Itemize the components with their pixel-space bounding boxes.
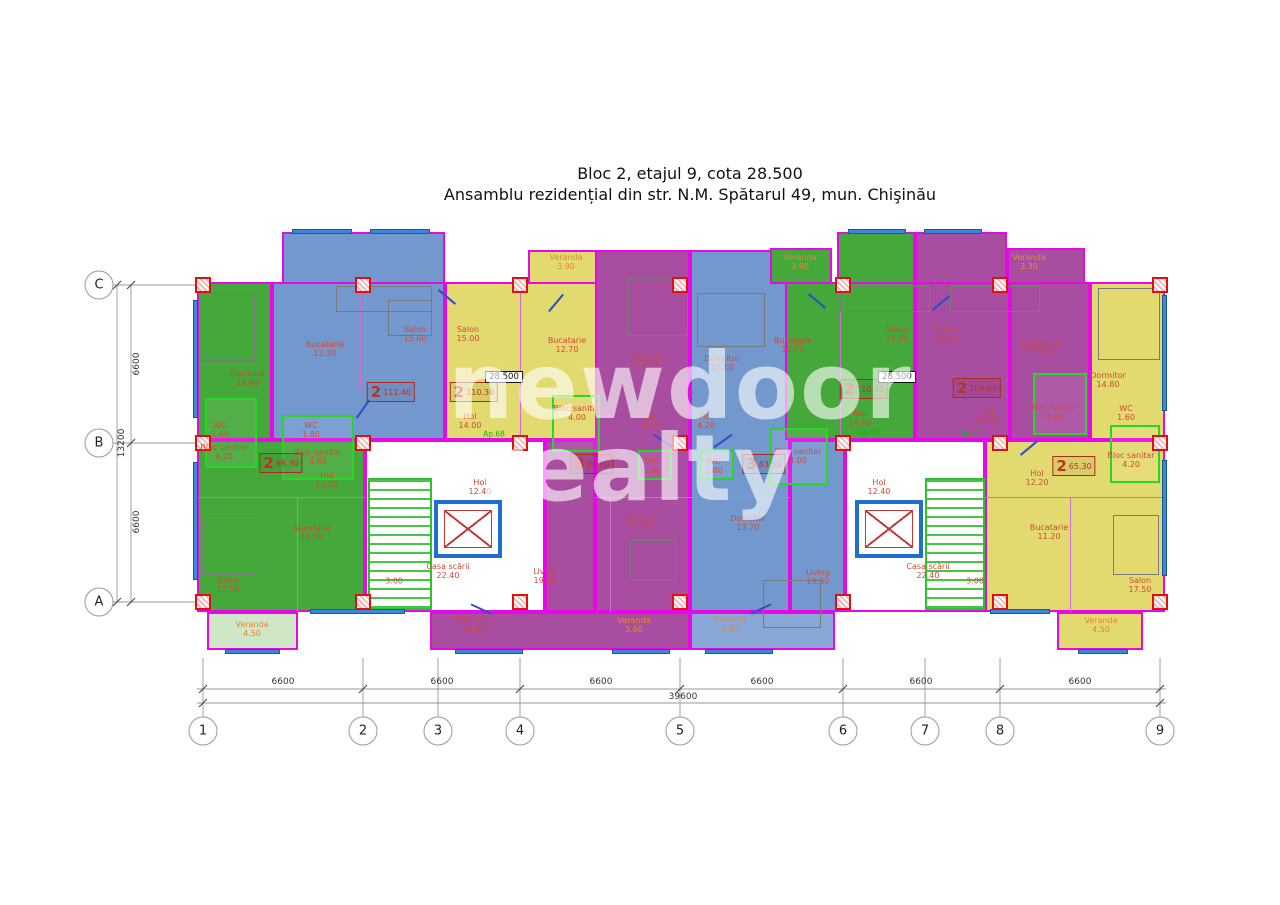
room-area: 3.60 <box>617 625 650 634</box>
room-area: 12.40 <box>868 487 891 496</box>
room-label: Dormitor13.70 <box>622 514 658 532</box>
room-name: Hol <box>459 412 482 421</box>
room-label: Veranda3.30 <box>1012 253 1045 271</box>
room-name: Hol <box>469 478 492 487</box>
room-name: Dormitor <box>630 354 666 363</box>
room-area: 3.60 <box>713 624 746 633</box>
room-label: Salon15.00 <box>457 325 480 343</box>
room-name: Salon <box>217 576 240 585</box>
column-marker <box>355 435 371 451</box>
room-area: 4.20 <box>697 421 715 430</box>
elevator-shaft-cross <box>865 510 913 548</box>
room-label: Dormitor14.80 <box>230 369 266 387</box>
room-name: Dormitor <box>730 514 766 523</box>
staircase-left <box>368 478 432 610</box>
room-label: Bloc sanitar4.20 <box>1107 451 1154 469</box>
room-name: Bucatarie <box>774 336 812 345</box>
axis-bubble-B: B <box>85 429 114 458</box>
room-label: Hol14.00 <box>849 409 872 427</box>
elevator-right <box>855 500 923 558</box>
room-name: Dormitor <box>704 354 740 363</box>
window <box>848 229 906 234</box>
interior-wall <box>1070 497 1071 612</box>
room-label: Bucatarie12.70 <box>1021 340 1059 358</box>
room-label: WC1.80 <box>643 457 661 475</box>
window <box>924 229 982 234</box>
axis-bubble-6: 6 <box>829 717 858 746</box>
furniture-bed <box>1098 288 1160 360</box>
room-area: 3.30 <box>1012 262 1045 271</box>
room-area: 12.30 <box>306 349 344 358</box>
axis-bubble-9: 9 <box>1146 717 1175 746</box>
room-name: Bucatarie <box>293 524 331 533</box>
badge-rooms-count: 3 <box>746 455 756 473</box>
room-label: Veranda3.60 <box>713 615 746 633</box>
column-marker <box>835 435 851 451</box>
room-label: Dormitor17.10 <box>704 354 740 372</box>
stairs-label: Casa scării22.40 <box>426 562 469 580</box>
room-area: 13.70 <box>730 523 766 532</box>
axis-bubble-2: 2 <box>349 717 378 746</box>
room-name: Bloc sanitar <box>1030 403 1077 412</box>
dim-label: 6600 <box>431 677 454 687</box>
column-marker <box>835 594 851 610</box>
room-label: Veranda3.90 <box>549 253 582 271</box>
room-label: Bucatarie12.30 <box>306 340 344 358</box>
room-label: Bloc sanitar4.20 <box>200 443 247 461</box>
room-name: Bucatarie <box>1030 523 1068 532</box>
apartment-badge: 2109.60 <box>953 378 1001 398</box>
column-marker <box>835 277 851 293</box>
dim-label: 6600 <box>132 353 142 376</box>
room-name: Bloc sanitar <box>1107 451 1154 460</box>
room-name: WC <box>705 457 723 466</box>
dim-label: 6600 <box>751 677 774 687</box>
apartment-badge: 265.30 <box>1052 456 1095 476</box>
room-area: 22.40 <box>426 571 469 580</box>
furniture-bed <box>697 293 765 347</box>
dim-label: 6600 <box>272 677 295 687</box>
axis-bubble-7: 7 <box>911 717 940 746</box>
room-area: 17.50 <box>217 585 240 594</box>
room-name: Veranda <box>549 253 582 262</box>
room-name: Salon <box>1129 576 1152 585</box>
axis-bubble-4: 4 <box>506 717 535 746</box>
room-name: Veranda <box>1084 616 1117 625</box>
room-name: Hol <box>643 412 661 421</box>
interior-wall <box>610 497 611 612</box>
room-area: 12.20 <box>316 480 339 489</box>
room-area: 12.40 <box>469 487 492 496</box>
room-area: 3.90 <box>783 262 816 271</box>
room-name: Bucatarie <box>306 340 344 349</box>
column-marker <box>992 435 1008 451</box>
room-label: Veranda3.60 <box>617 616 650 634</box>
room-area: 14.80 <box>230 378 266 387</box>
room-area: 15.00 <box>457 334 480 343</box>
dim-total-height: 13200 <box>117 429 127 458</box>
furniture-table <box>763 580 821 628</box>
room-name: Bucatarie <box>548 336 586 345</box>
column-marker <box>1152 594 1168 610</box>
room-area: 17.10 <box>704 363 740 372</box>
room-area: 4.20 <box>643 421 661 430</box>
room-area: 4.20 <box>200 452 247 461</box>
room-label: Bloc sanitar4.00 <box>774 447 821 465</box>
level-marker: 28.500 <box>878 371 916 383</box>
dim-label: 6600 <box>1069 677 1092 687</box>
room-label: WC1.80 <box>302 421 320 439</box>
room-area: 14.00 <box>459 421 482 430</box>
dim-label: 6600 <box>590 677 613 687</box>
furniture-sofa <box>840 286 930 312</box>
room-name: Living <box>533 567 557 576</box>
column-marker <box>195 594 211 610</box>
badge-rooms-count: 2 <box>454 383 464 401</box>
axis-bubble-3: 3 <box>424 717 453 746</box>
room-name: Bloc sanitar <box>200 443 247 452</box>
room-label: Salon15.60 <box>886 325 909 343</box>
dim-label: 6600 <box>132 511 142 534</box>
apartment-badge: 2111.40 <box>367 382 415 402</box>
room-name: WC <box>1117 404 1135 413</box>
room-area: 4.00 <box>774 456 821 465</box>
room-name: Bloc sanitar <box>774 447 821 456</box>
room-area: 1.80 <box>705 466 723 475</box>
furniture-sofa <box>1113 515 1159 575</box>
column-marker <box>512 277 528 293</box>
window <box>370 229 430 234</box>
badge-rooms-count: 2 <box>371 383 381 401</box>
apartment-number: Ap.69 <box>858 428 880 437</box>
badge-rooms-count: 2 <box>263 454 273 472</box>
apartment-number: Ap.68 <box>483 430 505 439</box>
room-name: Living <box>806 568 830 577</box>
axis-bubble-5: 5 <box>666 717 695 746</box>
badge-area: 84.80 <box>587 460 610 469</box>
badge-rooms-count: 2 <box>957 379 967 397</box>
room-name: Hol <box>868 478 891 487</box>
room-label: Dormitor17.10 <box>630 354 666 372</box>
furniture-bed <box>203 293 255 361</box>
room-name: Veranda <box>235 620 268 629</box>
furniture-bed <box>202 515 258 575</box>
room-label: WC1.80 <box>705 457 723 475</box>
room-area: 12.20 <box>1026 478 1049 487</box>
room-area: 17.50 <box>1129 585 1152 594</box>
room-name: Dormitor <box>230 369 266 378</box>
room-area: 3.00 <box>966 577 984 586</box>
room-area: 3.90 <box>549 262 582 271</box>
title-line1: Bloc 2, etajul 9, cota 28.500 <box>340 163 1040 184</box>
badge-rooms-count: 2 <box>844 380 854 398</box>
badge-rooms-count: 2 <box>1056 457 1066 475</box>
room-area: 15.00 <box>935 334 958 343</box>
room-area: 12.70 <box>774 345 812 354</box>
room-label: Bloc sanitar4.00 <box>553 404 600 422</box>
room-area: 15.60 <box>404 334 427 343</box>
room-label: Living19.90 <box>806 568 830 586</box>
interior-wall <box>985 497 1165 498</box>
elevator-left <box>434 500 502 558</box>
interior-wall <box>197 497 365 498</box>
room-name: Salon <box>457 325 480 334</box>
stairs-width-label: 3.00 <box>385 577 403 586</box>
room-area: 14.00 <box>849 418 872 427</box>
window <box>455 649 523 654</box>
room-label: Hol4.20 <box>643 412 661 430</box>
room-label: Hol14.00 <box>459 412 482 430</box>
dim-label: 6600 <box>910 677 933 687</box>
hall-label: Hol12.40 <box>469 478 492 496</box>
room-name: Bloc sanitar <box>294 448 341 457</box>
room-label: Bucatarie11.20 <box>1030 523 1068 541</box>
furniture-bed <box>630 540 676 580</box>
room-area: 4.20 <box>1107 460 1154 469</box>
room-name: Casa scării <box>426 562 469 571</box>
column-marker <box>355 277 371 293</box>
room-area: 3.00 <box>385 577 403 586</box>
room-name: Hol <box>697 412 715 421</box>
window <box>225 649 280 654</box>
window <box>1162 295 1167 411</box>
room-area: 19.90 <box>806 577 830 586</box>
room-area: 1.60 <box>211 430 229 439</box>
room-label: Salon17.50 <box>1129 576 1152 594</box>
room-name: Hol <box>316 471 339 480</box>
room-name: Dormitor <box>1090 371 1126 380</box>
staircase-right <box>925 478 985 610</box>
dim-total-width: 39600 <box>669 692 698 702</box>
interior-wall <box>690 497 790 498</box>
room-area: 15.60 <box>886 334 909 343</box>
apartment-number: Ap.71 <box>960 429 982 438</box>
room-label: Bloc sanitar4.00 <box>1030 403 1077 421</box>
room-name: Hol <box>976 408 999 417</box>
window <box>705 649 773 654</box>
room-name: Bloc sanitar <box>553 404 600 413</box>
room-area: 12.70 <box>1021 349 1059 358</box>
window <box>612 649 670 654</box>
room-name: Salon <box>404 325 427 334</box>
column-marker <box>355 594 371 610</box>
room-area: 17.10 <box>630 363 666 372</box>
room-name: WC <box>302 421 320 430</box>
drawing-title: Bloc 2, etajul 9, cota 28.500 Ansamblu r… <box>340 163 1040 205</box>
room-label: Veranda4.50 <box>1084 616 1117 634</box>
room-area: 19.90 <box>533 576 557 585</box>
room-area: 11.90 <box>455 624 493 633</box>
column-marker <box>672 594 688 610</box>
apartment-badge: 384.80 <box>570 454 613 474</box>
room-area: 4.00 <box>1030 412 1077 421</box>
room-name: WC <box>211 421 229 430</box>
room-label: Hol12.50 <box>976 408 999 426</box>
room-label: Bucatarie12.70 <box>548 336 586 354</box>
stairs-width-label: 3.00 <box>966 577 984 586</box>
room-area: 4.00 <box>553 413 600 422</box>
level-marker: 28.500 <box>485 371 523 383</box>
room-label: Dormitor14.80 <box>1090 371 1126 389</box>
room-label: Hol12.20 <box>316 471 339 489</box>
stairs-label: Casa scării22.40 <box>906 562 949 580</box>
room-area: 4.50 <box>235 629 268 638</box>
room-label: Veranda4.50 <box>235 620 268 638</box>
axis-bubble-A: A <box>85 588 114 617</box>
room-area: 1.60 <box>1117 413 1135 422</box>
room-name: Veranda <box>617 616 650 625</box>
column-marker <box>992 594 1008 610</box>
badge-rooms-count: 3 <box>574 455 584 473</box>
axis-bubble-C: C <box>85 271 114 300</box>
column-marker <box>672 277 688 293</box>
window <box>193 462 198 580</box>
room-label: WC1.60 <box>1117 404 1135 422</box>
room-label: Veranda3.90 <box>783 253 816 271</box>
badge-area: 110.30 <box>856 385 884 394</box>
room-label: Salon15.60 <box>404 325 427 343</box>
room-label: Bloc sanitar4.60 <box>294 448 341 466</box>
room-name: Salon <box>886 325 909 334</box>
room-area: 11.20 <box>293 533 331 542</box>
room-label: Bucatarie12.70 <box>774 336 812 354</box>
room-area: 14.80 <box>1090 380 1126 389</box>
badge-area: 110.30 <box>466 388 494 397</box>
elevator-shaft-cross <box>444 510 492 548</box>
window <box>193 300 198 418</box>
room-area: 11.20 <box>1030 532 1068 541</box>
room-area: 13.70 <box>622 523 658 532</box>
window <box>1162 460 1167 576</box>
apartment-badge: 2110.30 <box>450 382 498 402</box>
room-label: Salon17.50 <box>217 576 240 594</box>
room-label: Living19.90 <box>533 567 557 585</box>
room-name: Hol <box>1026 469 1049 478</box>
room-label: Bucatarie11.20 <box>293 524 331 542</box>
interior-wall <box>520 282 521 440</box>
room-name: Casa scării <box>906 562 949 571</box>
room-area: 4.50 <box>1084 625 1117 634</box>
room-name: WC <box>643 457 661 466</box>
room-name: Salon <box>935 325 958 334</box>
column-marker <box>1152 435 1168 451</box>
room-area: 1.80 <box>302 430 320 439</box>
room-label: WC1.60 <box>211 421 229 439</box>
column-marker <box>1152 277 1168 293</box>
axis-bubble-1: 1 <box>189 717 218 746</box>
room-label: Bucatarie11.90 <box>455 615 493 633</box>
badge-area: 65.30 <box>1069 462 1092 471</box>
room-name: Bucatarie <box>1021 340 1059 349</box>
window <box>1078 649 1128 654</box>
column-marker <box>672 435 688 451</box>
hall-label: Hol12.40 <box>868 478 891 496</box>
badge-area: 109.60 <box>969 384 997 393</box>
room-name: Veranda <box>1012 253 1045 262</box>
window <box>292 229 352 234</box>
room-name: Veranda <box>783 253 816 262</box>
axis-bubble-8: 8 <box>986 717 1015 746</box>
room-area: 12.70 <box>548 345 586 354</box>
badge-area: 111.40 <box>383 388 411 397</box>
title-line2: Ansamblu rezidențial din str. N.M. Spăta… <box>340 184 1040 205</box>
column-marker <box>992 277 1008 293</box>
room-name: Hol <box>849 409 872 418</box>
room-area: 1.80 <box>643 466 661 475</box>
column-marker <box>512 594 528 610</box>
column-marker <box>512 435 528 451</box>
room-name: Veranda <box>713 615 746 624</box>
interior-wall <box>297 497 298 612</box>
room-name: Dormitor <box>622 514 658 523</box>
room-area: 4.60 <box>294 457 341 466</box>
room-label: Dormitor13.70 <box>730 514 766 532</box>
room-area: 22.40 <box>906 571 949 580</box>
room-label: Hol12.20 <box>1026 469 1049 487</box>
room-label: Salon15.00 <box>935 325 958 343</box>
floor-plan-page: Bloc 2, etajul 9, cota 28.500 Ansamblu r… <box>0 0 1280 905</box>
room-name: Bucatarie <box>455 615 493 624</box>
room-area: 12.50 <box>976 417 999 426</box>
column-marker <box>195 277 211 293</box>
room-label: Hol4.20 <box>697 412 715 430</box>
